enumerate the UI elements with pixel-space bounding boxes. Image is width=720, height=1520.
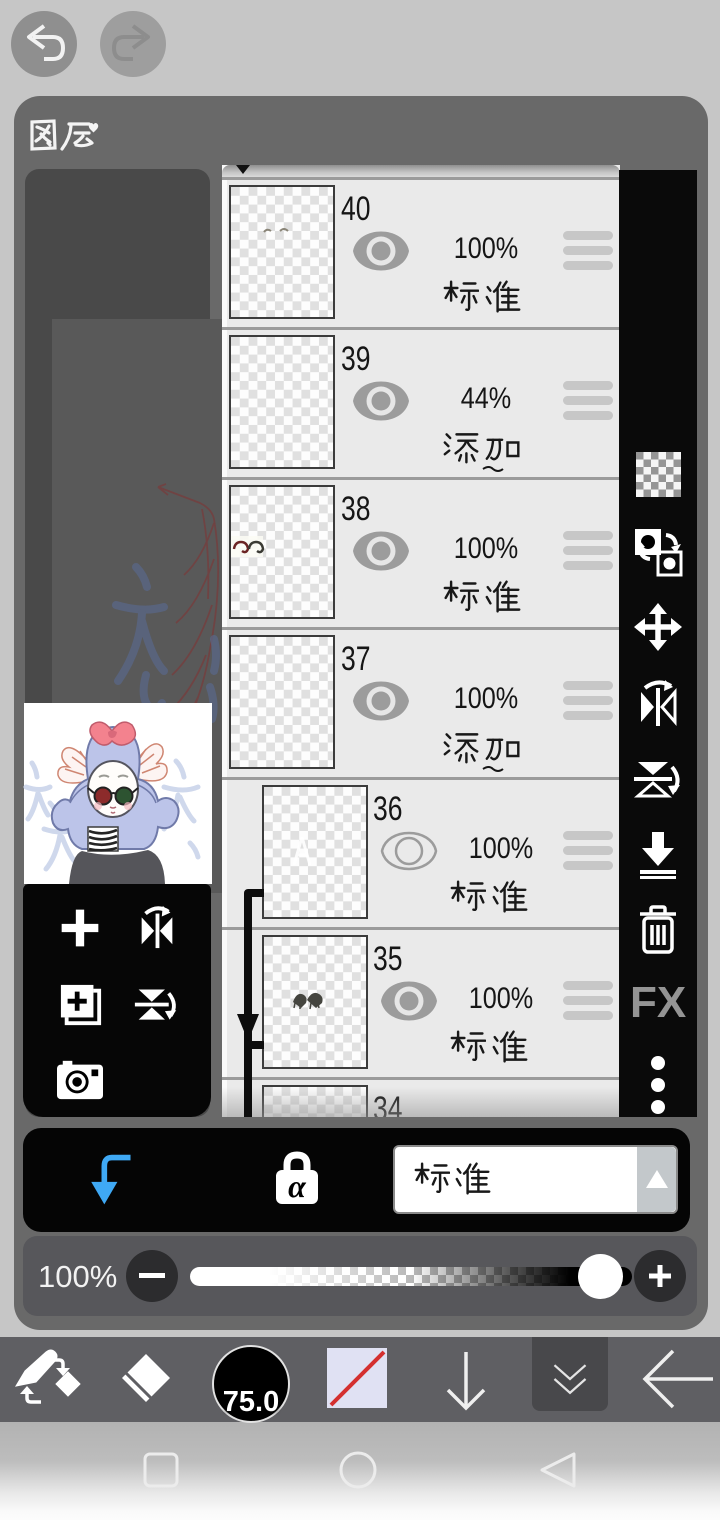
svg-text:α: α: [288, 1168, 307, 1204]
